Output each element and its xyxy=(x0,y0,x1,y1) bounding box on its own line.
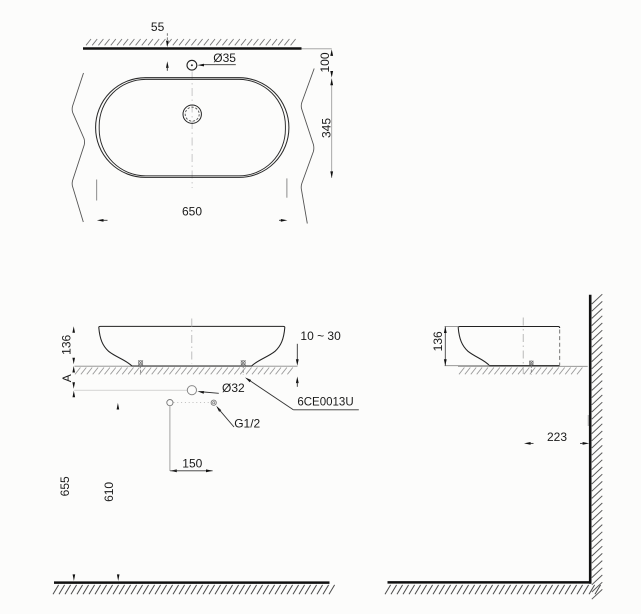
svg-text:136: 136 xyxy=(431,331,445,351)
svg-text:Ø32: Ø32 xyxy=(222,381,245,395)
svg-text:10 ~ 30: 10 ~ 30 xyxy=(300,329,341,343)
svg-text:610: 610 xyxy=(102,482,116,502)
svg-text:A: A xyxy=(60,374,74,382)
svg-text:55: 55 xyxy=(151,20,165,34)
svg-text:Ø35: Ø35 xyxy=(213,51,236,65)
svg-text:223: 223 xyxy=(547,430,567,444)
svg-text:100: 100 xyxy=(318,52,332,72)
svg-text:136: 136 xyxy=(59,334,73,354)
svg-text:345: 345 xyxy=(320,118,334,138)
svg-text:655: 655 xyxy=(58,476,72,496)
svg-text:150: 150 xyxy=(182,457,202,471)
svg-text:G1/2: G1/2 xyxy=(234,417,260,431)
svg-text:6CE0013U: 6CE0013U xyxy=(297,397,353,409)
svg-text:650: 650 xyxy=(182,205,202,219)
